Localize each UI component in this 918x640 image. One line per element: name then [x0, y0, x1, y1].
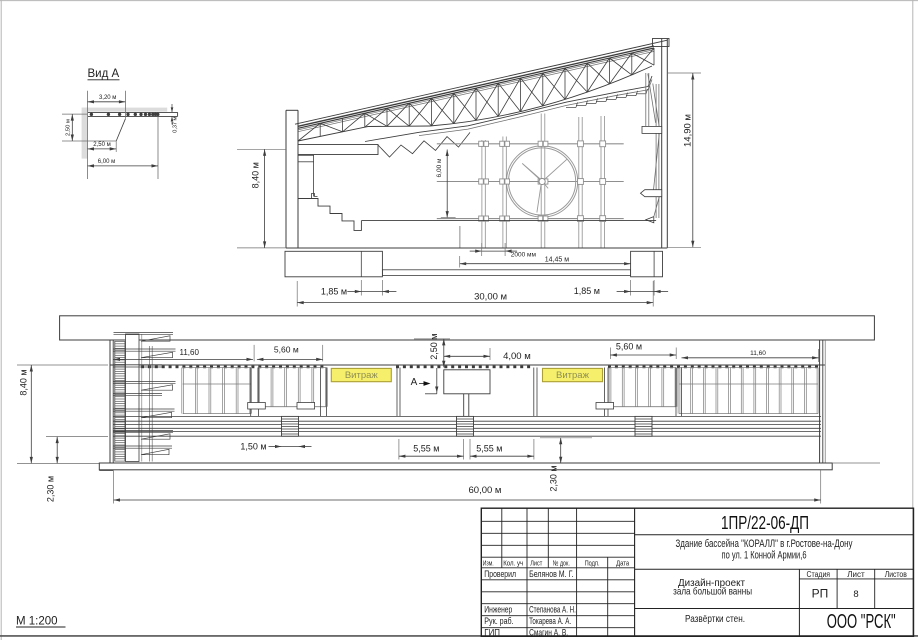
svg-text:Развёртки стен.: Развёртки стен. — [685, 613, 745, 625]
svg-text:1,50 м: 1,50 м — [240, 441, 266, 451]
svg-text:11,60: 11,60 — [750, 350, 766, 357]
svg-text:Изм.: Изм. — [483, 558, 494, 567]
svg-text:Степанова А. Н.: Степанова А. Н. — [529, 604, 576, 614]
svg-text:8: 8 — [853, 589, 858, 600]
svg-text:Дата: Дата — [616, 558, 630, 567]
svg-text:№ док.: № док. — [553, 558, 570, 567]
svg-text:5,60 м: 5,60 м — [616, 341, 642, 351]
svg-text:60,00 м: 60,00 м — [469, 485, 502, 496]
svg-text:Лист: Лист — [530, 558, 542, 567]
svg-text:6,00 м: 6,00 м — [98, 159, 115, 165]
svg-text:5,60 м: 5,60 м — [274, 344, 299, 354]
svg-text:1,85 м: 1,85 м — [574, 286, 600, 296]
svg-text:Смагин А. В.: Смагин А. В. — [529, 627, 568, 637]
svg-text:6,00 м: 6,00 м — [436, 158, 443, 177]
svg-text:ГИП: ГИП — [484, 627, 500, 637]
svg-text:М 1:200: М 1:200 — [16, 616, 58, 628]
svg-text:Белянов М. Г.: Белянов М. Г. — [529, 569, 573, 579]
svg-text:2,30 м: 2,30 м — [46, 476, 56, 502]
svg-text:2000 мм: 2000 мм — [511, 252, 537, 259]
svg-text:РП: РП — [812, 587, 829, 601]
svg-text:Витраж: Витраж — [345, 370, 379, 381]
svg-text:1ПР/22-06-ДП: 1ПР/22-06-ДП — [721, 512, 809, 533]
svg-text:14,90 м: 14,90 м — [682, 114, 693, 147]
svg-text:3,20 м: 3,20 м — [99, 95, 116, 101]
svg-text:Лист: Лист — [847, 570, 865, 579]
svg-text:0,37 м: 0,37 м — [173, 116, 179, 132]
svg-text:2,50 м: 2,50 м — [93, 142, 110, 148]
svg-text:Проверил: Проверил — [484, 569, 516, 579]
svg-text:4,00 м: 4,00 м — [503, 351, 531, 362]
svg-text:Кол. уч: Кол. уч — [503, 558, 523, 567]
svg-text:Вид А: Вид А — [88, 68, 120, 80]
svg-text:8,40 м: 8,40 м — [19, 369, 29, 395]
svg-text:Инженер: Инженер — [484, 604, 512, 614]
svg-text:2,30 м: 2,30 м — [548, 465, 558, 491]
svg-text:5,55 м: 5,55 м — [476, 443, 502, 453]
svg-text:2,50 м: 2,50 м — [429, 333, 439, 359]
svg-text:Рук. раб.: Рук. раб. — [484, 616, 513, 626]
svg-text:Здание бассейна "КОРАЛЛ" в г.Р: Здание бассейна "КОРАЛЛ" в г.Ростове-на-… — [676, 538, 853, 550]
svg-text:зала большой ванны: зала большой ванны — [673, 585, 752, 597]
svg-text:Листов: Листов — [885, 570, 907, 579]
svg-text:11,60: 11,60 — [179, 348, 199, 357]
svg-text:2,50 м: 2,50 м — [65, 119, 71, 136]
svg-text:Подп.: Подп. — [585, 558, 600, 567]
svg-text:30,00 м: 30,00 м — [474, 292, 507, 303]
svg-text:ООО "РСК": ООО "РСК" — [827, 611, 896, 633]
svg-text:8,40 м: 8,40 м — [251, 162, 261, 188]
svg-text:Токарева А. А.: Токарева А. А. — [529, 616, 571, 626]
svg-text:Стадия: Стадия — [807, 570, 831, 579]
svg-text:Витраж: Витраж — [556, 370, 590, 381]
svg-text:по ул. 1 Конной Армии,6: по ул. 1 Конной Армии,6 — [722, 550, 807, 562]
svg-text:5,55 м: 5,55 м — [413, 443, 439, 453]
svg-text:1,85 м: 1,85 м — [321, 287, 347, 297]
svg-text:14,45 м: 14,45 м — [545, 256, 569, 263]
svg-text:А: А — [411, 377, 418, 388]
